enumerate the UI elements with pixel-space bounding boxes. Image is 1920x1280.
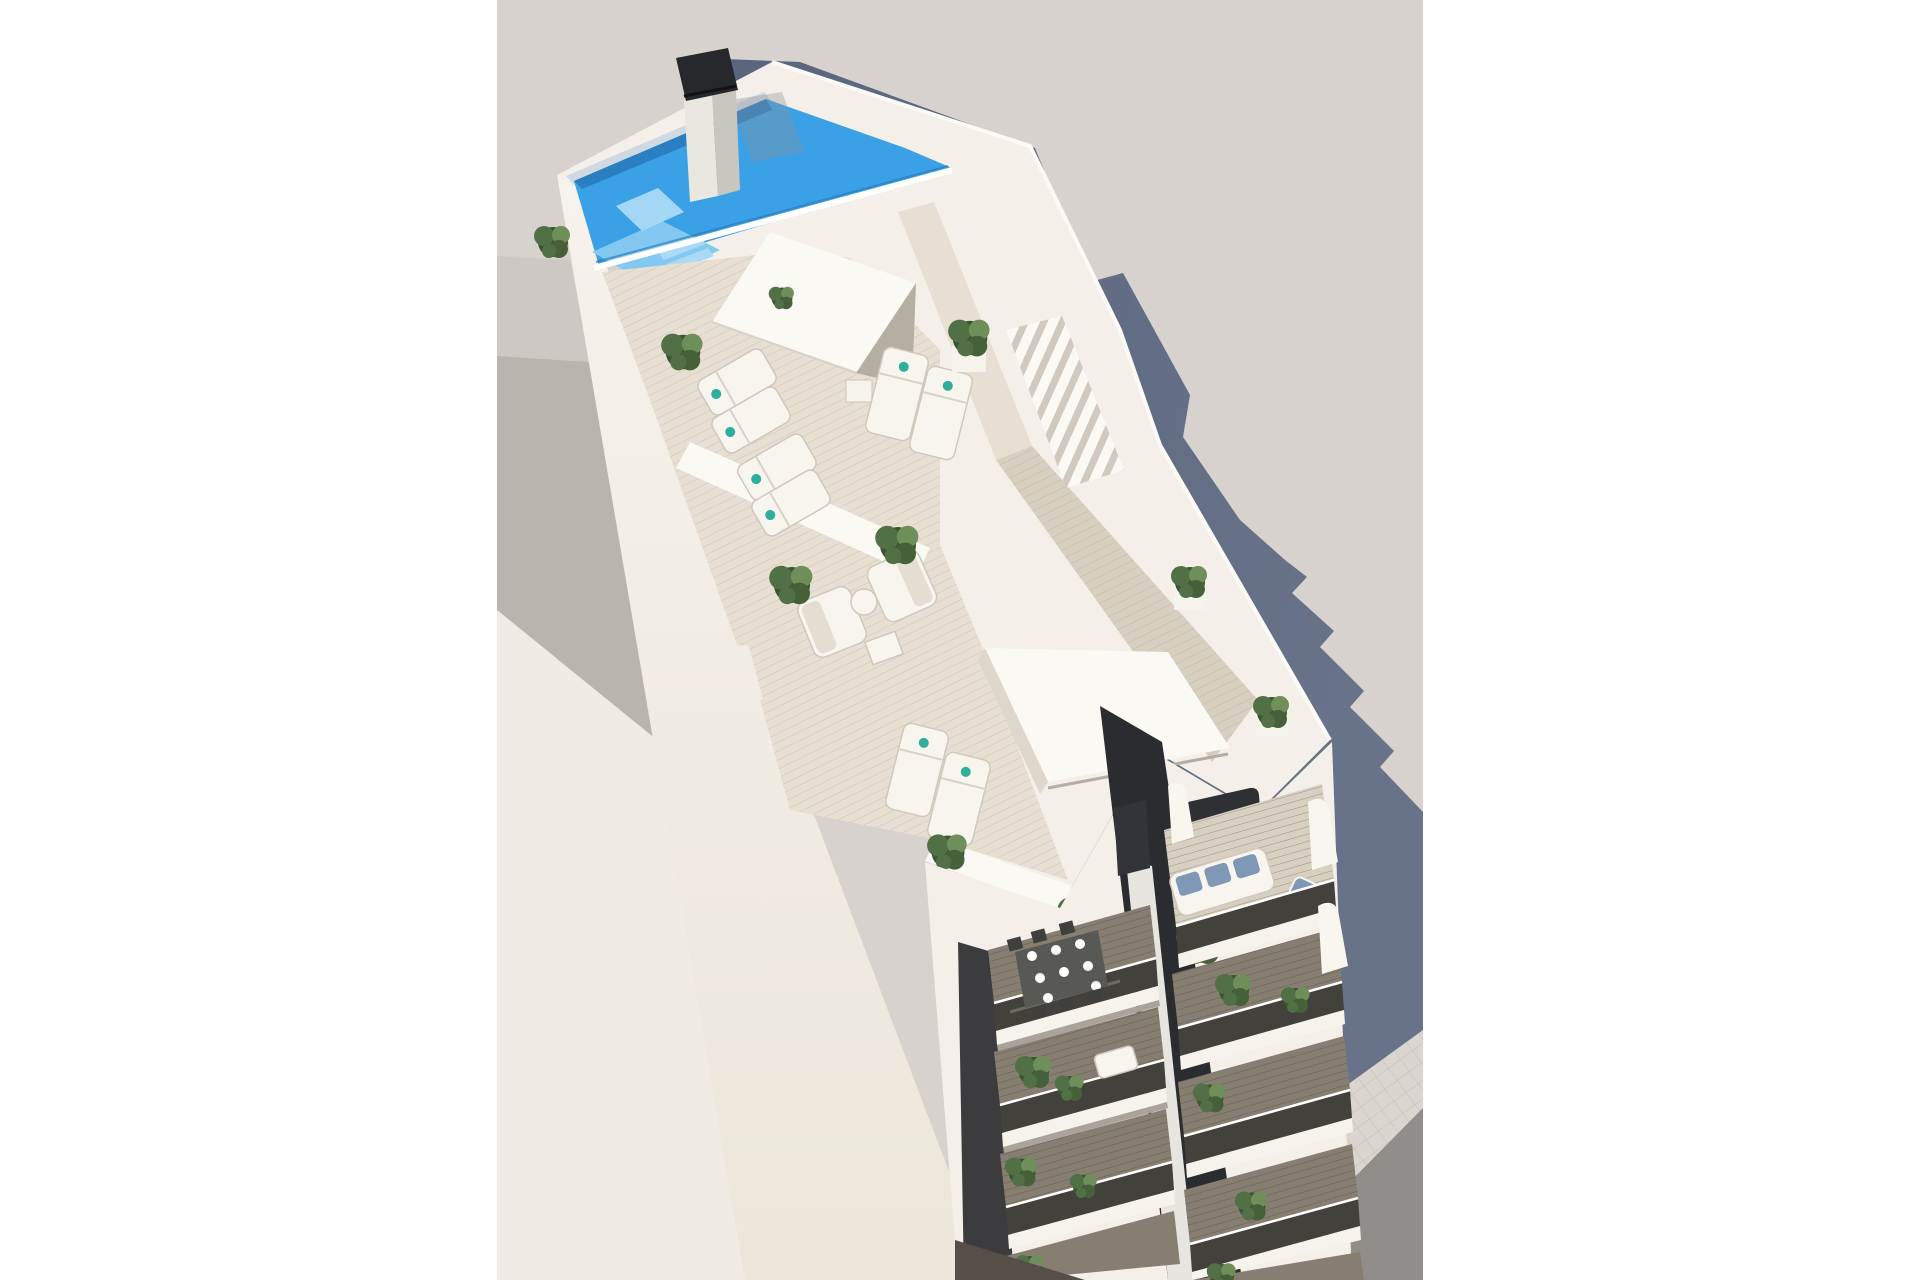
page-margin-right	[1423, 0, 1920, 1280]
side-table	[846, 380, 872, 402]
page: Aerial 3D architectural rendering of a s…	[0, 0, 1920, 1280]
architectural-render: Aerial 3D architectural rendering of a s…	[0, 0, 1920, 1280]
coffee-table-round	[851, 589, 877, 615]
render-canvas	[0, 0, 1920, 1280]
chimney-body-front	[684, 94, 718, 202]
terrace-doorway	[1114, 800, 1150, 876]
page-margin-left	[0, 0, 497, 1280]
balcony-column-left	[988, 905, 1180, 1280]
